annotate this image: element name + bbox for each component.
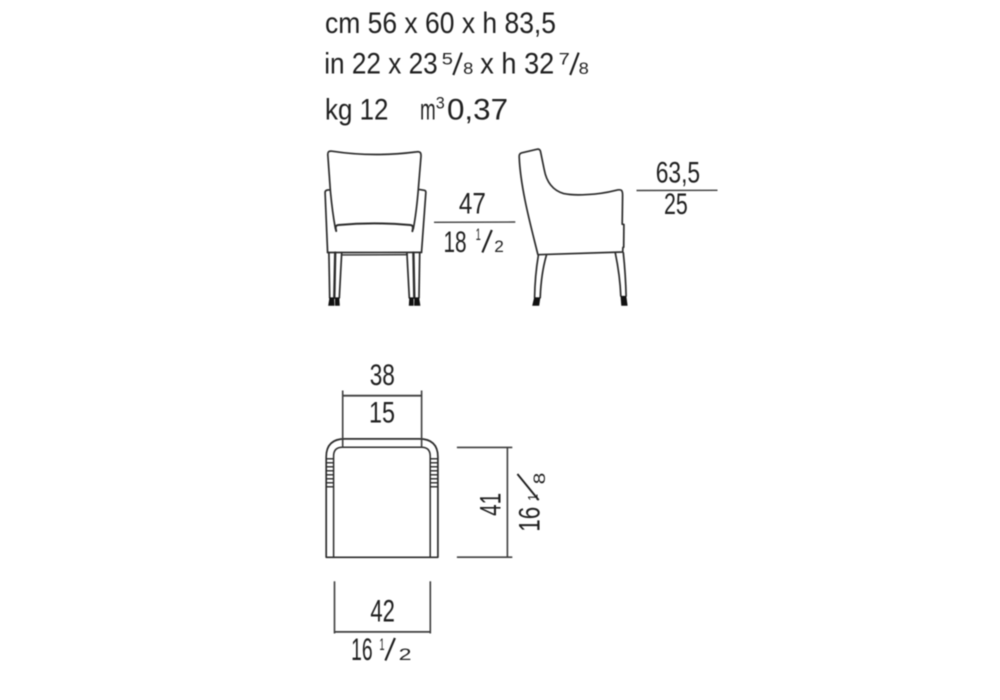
svg-text:kg 12: kg 12 xyxy=(325,93,388,126)
svg-text:25: 25 xyxy=(664,188,688,221)
svg-text:cm 56 x 60 x h 83,5: cm 56 x 60 x h 83,5 xyxy=(325,7,556,40)
svg-text:8: 8 xyxy=(463,59,473,78)
svg-text:x h 32: x h 32 xyxy=(480,47,554,80)
svg-text:16: 16 xyxy=(351,631,373,667)
svg-text:8: 8 xyxy=(579,59,589,78)
svg-text:16: 16 xyxy=(513,507,546,532)
svg-text:5: 5 xyxy=(442,50,453,69)
svg-text:38: 38 xyxy=(370,359,395,392)
svg-text:2: 2 xyxy=(494,237,504,256)
svg-text:41: 41 xyxy=(475,493,508,516)
svg-text:8: 8 xyxy=(530,473,549,485)
svg-text:42: 42 xyxy=(370,593,395,629)
svg-text:m: m xyxy=(420,93,436,126)
svg-text:0,37: 0,37 xyxy=(447,93,508,126)
svg-text:2: 2 xyxy=(399,645,412,664)
svg-text:3: 3 xyxy=(436,94,445,113)
svg-text:18: 18 xyxy=(444,226,467,259)
svg-text:63,5: 63,5 xyxy=(656,156,700,189)
svg-text:47: 47 xyxy=(459,188,486,221)
svg-text:15: 15 xyxy=(369,396,395,429)
svg-text:1: 1 xyxy=(476,225,481,244)
svg-text:7: 7 xyxy=(559,50,570,69)
svg-text:1: 1 xyxy=(379,635,384,654)
svg-text:in 22 x 23: in 22 x 23 xyxy=(324,47,438,80)
